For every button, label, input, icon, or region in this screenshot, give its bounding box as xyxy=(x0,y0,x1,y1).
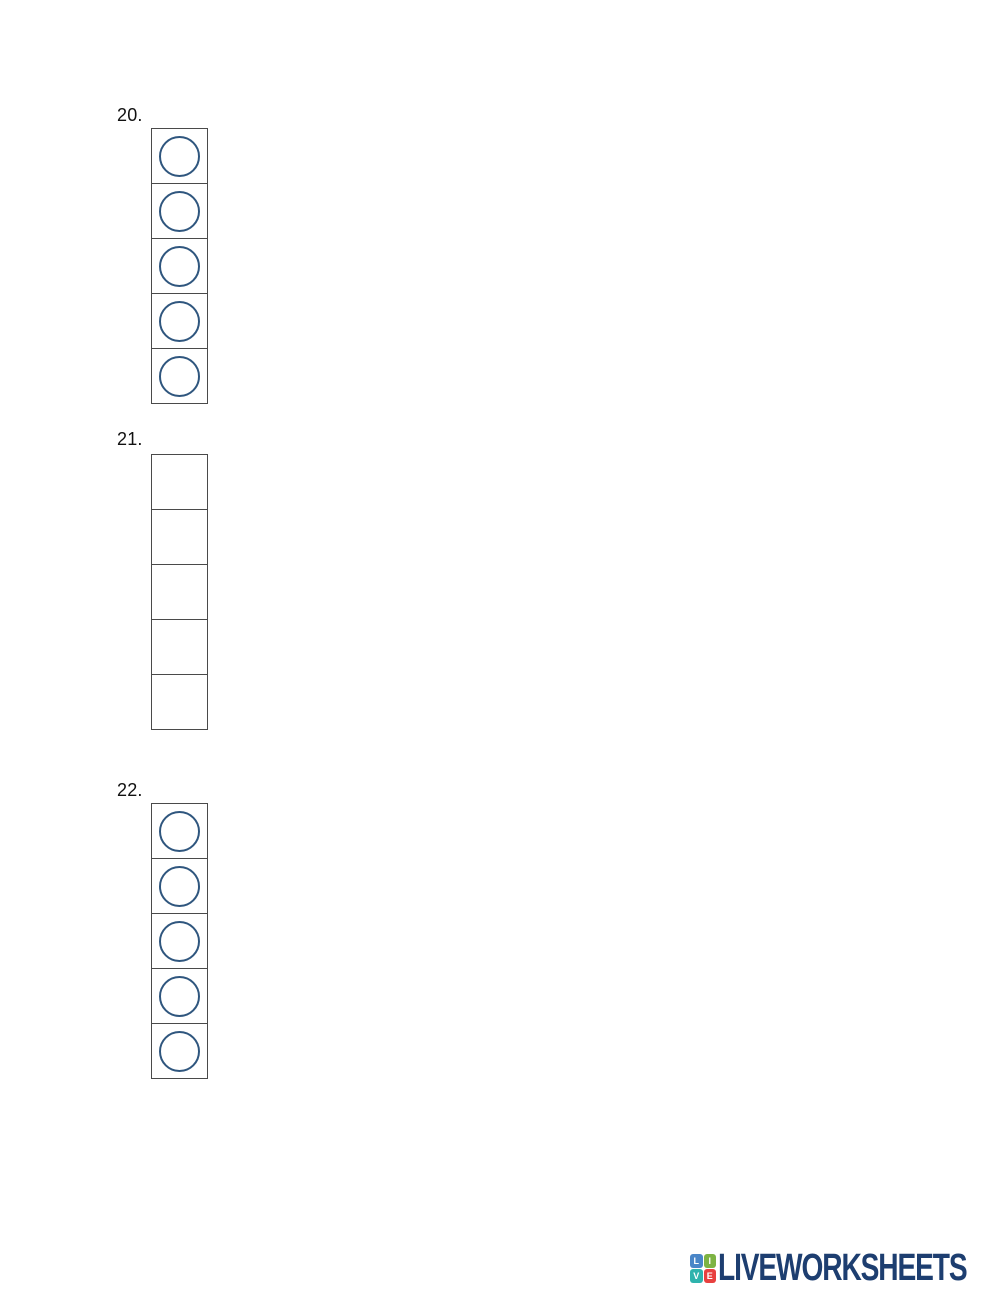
choice-circle-icon[interactable] xyxy=(159,866,200,907)
answer-column-22 xyxy=(151,803,208,1079)
choice-circle-icon[interactable] xyxy=(159,191,200,232)
logo-block-v-icon: V xyxy=(690,1269,703,1283)
question-number-20: 20. xyxy=(117,106,143,125)
answer-column-21 xyxy=(151,454,208,730)
choice-cell xyxy=(151,183,208,239)
question-number-21: 21. xyxy=(117,430,143,449)
worksheet-page: 20. 21. 22. LIVE LIVEWORKSHEETS xyxy=(0,0,1000,1294)
choice-circle-icon[interactable] xyxy=(159,246,200,287)
choice-cell xyxy=(151,128,208,184)
answer-column-20 xyxy=(151,128,208,404)
liveworksheets-wordmark: LIVEWORKSHEETS xyxy=(718,1251,967,1285)
liveworksheets-logo[interactable]: LIVE LIVEWORKSHEETS xyxy=(690,1251,1000,1285)
question-number-22: 22. xyxy=(117,781,143,800)
choice-circle-icon[interactable] xyxy=(159,976,200,1017)
logo-block-l-icon: L xyxy=(690,1254,703,1268)
text-input-cell[interactable] xyxy=(151,619,208,675)
text-input-cell[interactable] xyxy=(151,454,208,510)
choice-cell xyxy=(151,348,208,404)
text-input-cell[interactable] xyxy=(151,564,208,620)
choice-cell xyxy=(151,1023,208,1079)
choice-circle-icon[interactable] xyxy=(159,136,200,177)
choice-cell xyxy=(151,238,208,294)
choice-cell xyxy=(151,858,208,914)
choice-cell xyxy=(151,293,208,349)
choice-cell xyxy=(151,913,208,969)
text-input-cell[interactable] xyxy=(151,509,208,565)
choice-circle-icon[interactable] xyxy=(159,356,200,397)
choice-cell xyxy=(151,968,208,1024)
choice-circle-icon[interactable] xyxy=(159,301,200,342)
choice-cell xyxy=(151,803,208,859)
logo-block-e-icon: E xyxy=(704,1269,717,1283)
logo-block-i-icon: I xyxy=(704,1254,717,1268)
liveworksheets-logo-icon: LIVE xyxy=(690,1254,716,1283)
choice-circle-icon[interactable] xyxy=(159,921,200,962)
text-input-cell[interactable] xyxy=(151,674,208,730)
choice-circle-icon[interactable] xyxy=(159,811,200,852)
choice-circle-icon[interactable] xyxy=(159,1031,200,1072)
